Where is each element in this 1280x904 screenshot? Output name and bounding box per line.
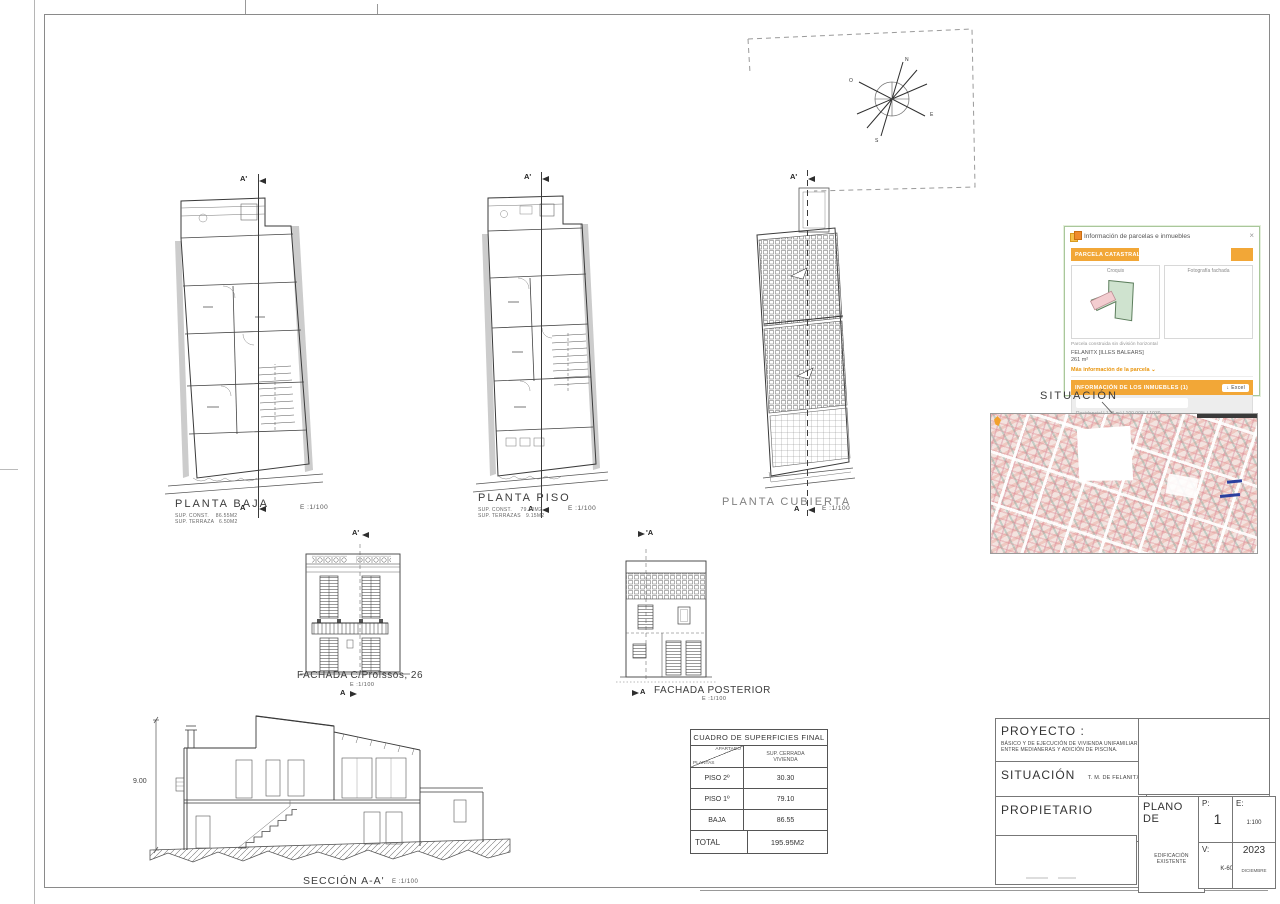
- surfaces-col-header: SUP. CERRADA VIVIENDA: [744, 746, 827, 767]
- parcel-municipality: FELANITX [ILLES BALEARS] 261 m²: [1071, 350, 1253, 364]
- situacion-tb-label: SITUACIÓN: [1001, 768, 1075, 782]
- section-line-baja: [258, 174, 259, 518]
- section-marker-a-prime-front: A': [352, 528, 359, 537]
- parcel-area: 261 m²: [1071, 357, 1253, 364]
- titleblock-e-box: E: 1:100: [1232, 796, 1276, 845]
- p-label: P:: [1202, 799, 1233, 808]
- planta-cubierta-drawing: [733, 180, 855, 512]
- surfaces-row-value: 86.55: [744, 810, 827, 830]
- plano-de-value: EDIFICACIÓN EXISTENTE: [1143, 853, 1200, 865]
- proyecto-text: BÁSICO Y DE EJECUCIÓN DE VIVIENDA UNIFAM…: [1001, 741, 1141, 753]
- fachada-rear-title: FACHADA POSTERIOR: [654, 685, 771, 696]
- excel-button-label: Excel: [1231, 385, 1245, 391]
- planta-baja-title: PLANTA BAJA: [175, 498, 269, 510]
- titleblock-empty-box: [1138, 718, 1270, 795]
- titleblock-empty-box2: [995, 835, 1137, 885]
- v-label: V:: [1202, 845, 1233, 854]
- parcel-sketch: [1082, 276, 1146, 330]
- download-icon: ↓: [1226, 385, 1229, 391]
- year-value: 2023: [1236, 845, 1272, 856]
- planta-baja-surfaces: SUP. CONST. 86.55M2 SUP. TERRAZA 6.50M2: [175, 513, 238, 525]
- fachada-front-scale: E :1/100: [350, 682, 375, 688]
- close-icon[interactable]: ×: [1249, 232, 1254, 240]
- v-value: K-60: [1202, 866, 1233, 872]
- planta-baja-scale: E :1/100: [300, 504, 328, 511]
- section-flag-icon: [259, 178, 266, 184]
- compass-e: E: [930, 112, 934, 118]
- map-edge-bar: [1197, 414, 1257, 418]
- fachada-rear-drawing: [616, 545, 716, 683]
- surfaces-row-value: 30.30: [744, 768, 827, 788]
- section-marker-a-prime-baja: A': [240, 174, 247, 183]
- surfaces-row-label: PISO 2º: [691, 768, 744, 788]
- surfaces-total-value: 195.95M2: [748, 831, 827, 853]
- parcel-catastral-label: PARCELA CATASTRAL: [1075, 252, 1140, 258]
- surfaces-row-value: 79.10: [744, 789, 827, 809]
- section-flag-icon: [350, 691, 357, 697]
- surfaces-row-label: PISO 1º: [691, 789, 744, 809]
- section-line-piso: [541, 172, 542, 518]
- croquis-panel: Croquis: [1071, 265, 1160, 339]
- catastro-popup-window: Información de parcelas e inmuebles × PA…: [1064, 226, 1260, 396]
- section-marker-a-front: A: [340, 688, 345, 697]
- popup-title: Información de parcelas e inmuebles: [1084, 233, 1245, 240]
- surfaces-row-label: BAJA: [691, 810, 744, 830]
- planta-piso-scale: E :1/100: [568, 505, 596, 512]
- sheet-tick-left: [0, 469, 18, 470]
- excel-button[interactable]: ↓ Excel: [1222, 384, 1249, 392]
- plano-de-label: PLANO DE: [1143, 801, 1200, 825]
- proyecto-label: PROYECTO :: [1001, 724, 1085, 738]
- more-info-link[interactable]: Más información de la parcela ⌄: [1071, 367, 1253, 377]
- parcel-catastral-bar: PARCELA CATASTRAL: [1071, 248, 1253, 261]
- sheet-tick-top2: [377, 4, 378, 14]
- compass-rose: N E S O: [845, 52, 940, 147]
- e-label: E:: [1236, 799, 1272, 808]
- chevron-down-icon: ⌄: [1151, 367, 1156, 373]
- map-redacted-site: [1072, 422, 1138, 488]
- section-marker-a-prime-rear: 'A: [646, 528, 653, 537]
- croquis-caption: Croquis: [1072, 268, 1159, 274]
- fachada-rear-scale: E :1/100: [702, 696, 727, 702]
- fachada-front-title: FACHADA C/Proïssos, 26: [297, 670, 423, 681]
- planta-cubierta-scale: E :1/100: [822, 505, 850, 512]
- surfaces-table-title: CUADRO DE SUPERFICIES FINAL: [691, 730, 827, 745]
- fachada-front-drawing: [300, 540, 410, 680]
- titleblock-year-box: 2023 DICIEMBRE: [1232, 842, 1276, 889]
- planta-piso-title: PLANTA PISO: [478, 492, 571, 504]
- section-line-cubierta: [807, 170, 808, 518]
- parcels-icon: [1070, 231, 1080, 241]
- foto-caption: Fotografía fachada: [1165, 268, 1252, 274]
- section-flag-icon: [632, 690, 639, 696]
- compass-w: O: [849, 78, 853, 84]
- titleblock-proyecto-box: PROYECTO : BÁSICO Y DE EJECUCIÓN DE VIVI…: [995, 718, 1147, 766]
- surfaces-table-diagonal-header: APARTADO PLANTAS: [691, 746, 744, 767]
- surfaces-table: CUADRO DE SUPERFICIES FINAL APARTADO PLA…: [690, 729, 828, 854]
- section-marker-a-prime-piso: A': [524, 172, 531, 181]
- month-value: DICIEMBRE: [1236, 868, 1272, 873]
- diag-top-label: APARTADO: [715, 747, 741, 752]
- planta-piso-drawing: [468, 186, 608, 496]
- seccion-drawing: [138, 700, 523, 888]
- planta-baja-drawing: [163, 186, 333, 496]
- diag-bottom-label: PLANTAS: [693, 761, 715, 766]
- seccion-title: SECCIÓN A-A': [303, 875, 385, 887]
- titleblock-plano-box: PLANO DE EDIFICACIÓN EXISTENTE: [1138, 796, 1205, 893]
- drawing-sheet: A' A PLANTA BAJA SUP. CONST. 86.55M2 SUP…: [0, 0, 1280, 904]
- situacion-tb-value: T. M. DE FELANITX: [1088, 775, 1140, 781]
- compass-s: S: [875, 138, 879, 144]
- parcel-note: Parcela construida sin división horizont…: [1071, 342, 1253, 347]
- sheet-margin-line: [34, 0, 35, 904]
- situacion-map: [990, 413, 1258, 554]
- seccion-scale: E :1/100: [392, 879, 418, 885]
- section-flag-icon: [638, 531, 645, 537]
- surfaces-total-label: TOTAL: [691, 831, 748, 853]
- popup-titlebar: Información de parcelas e inmuebles ×: [1065, 227, 1259, 245]
- section-marker-a-rear: A: [640, 687, 645, 696]
- section-flag-icon: [542, 176, 549, 182]
- sheet-tick-top1: [245, 0, 246, 14]
- more-info-link-text: Más información de la parcela: [1071, 367, 1150, 373]
- propietario-label: PROPIETARIO: [1001, 803, 1093, 817]
- section-flag-icon: [362, 532, 369, 538]
- foto-fachada-panel: Fotografía fachada: [1164, 265, 1253, 339]
- municipality-text: FELANITX [ILLES BALEARS]: [1071, 350, 1253, 357]
- redaction-block: [1139, 246, 1231, 262]
- faint-mark: [1058, 877, 1076, 879]
- planta-piso-surfaces: SUP. CONST. 79.10M2 SUP. TERRAZAS 9.15M2: [478, 507, 544, 519]
- faint-mark: [1026, 877, 1048, 879]
- seccion-height-dim: 9.00: [133, 778, 147, 785]
- p-value: 1: [1202, 811, 1233, 827]
- compass-n: N: [905, 57, 909, 63]
- e-value: 1:100: [1236, 820, 1272, 826]
